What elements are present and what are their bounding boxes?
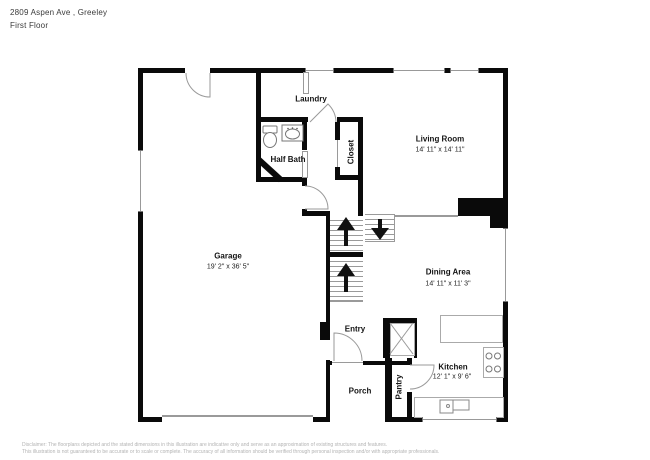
room-label-living: Living Room [416,135,464,144]
wall-segment [383,318,390,358]
room-dims-garage: 19' 2" x 36' 5" [207,264,249,271]
door-jamb [320,322,326,340]
room-label-laundry: Laundry [295,95,327,104]
stair-edge-line [394,214,395,242]
mechanical-closet [390,323,415,356]
wall-segment [335,175,363,180]
room-dims-living: 14' 11" x 14' 11" [415,147,464,154]
door-opening [302,186,307,209]
window [393,68,445,73]
toilet-icon [263,126,277,148]
stair-edge-line [365,214,395,215]
floor-subtitle: First Floor [10,21,48,30]
closet-door [337,140,338,167]
door-arc [410,365,434,389]
garage-door [162,415,313,417]
wall-segment [261,177,307,182]
window [305,68,334,73]
fireplace [458,198,504,216]
bath-sink-icon [282,125,303,141]
room-label-garage: Garage [214,252,242,261]
wall-segment [138,68,143,422]
stair-edge-line [365,241,395,242]
stair-edge-line [330,300,363,302]
stair-flight-down [365,215,394,241]
door-arc [334,333,362,361]
window [503,228,508,302]
kitchen-counter [440,315,503,343]
door-arc [305,186,328,209]
wall-segment [407,358,412,365]
room-label-kitchen: Kitchen [438,363,467,372]
room-label-entry: Entry [345,325,365,334]
door-opening [185,68,210,73]
wall-segment [256,72,261,182]
window [138,150,143,212]
window [450,68,479,73]
door-opening [326,340,330,360]
stove [483,347,504,378]
wall-segment [407,392,412,422]
wall-segment [385,358,392,422]
door-opening [308,117,337,122]
room-divider-line [395,215,458,217]
floorplan-page: 2809 Aspen Ave , Greeley First Floor [0,0,650,460]
room-label-dining: Dining Area [426,268,471,277]
room-label-closet: Closet [347,140,356,164]
window [422,417,497,422]
address-title: 2809 Aspen Ave , Greeley [10,8,107,17]
stair-flight-up [330,257,363,300]
disclaimer-line-1: Disclaimer: The floorplans depicted and … [22,442,630,449]
threshold-line [332,362,363,363]
disclaimer-line-2: This illustration is not guaranteed to b… [22,449,630,456]
kitchen-counter [414,397,504,418]
open-door-leaf [303,72,309,94]
stair-flight-up [330,216,363,252]
door-opening [407,365,412,392]
fireplace [490,216,504,228]
room-label-half-bath: Half Bath [268,155,308,165]
door-arc [186,73,210,97]
room-dims-dining: 14' 11" x 11' 3" [425,281,470,288]
room-label-pantry: Pantry [395,375,404,400]
room-label-porch: Porch [349,387,372,396]
room-dims-kitchen: 12' 1" x 9' 6" [433,374,471,381]
